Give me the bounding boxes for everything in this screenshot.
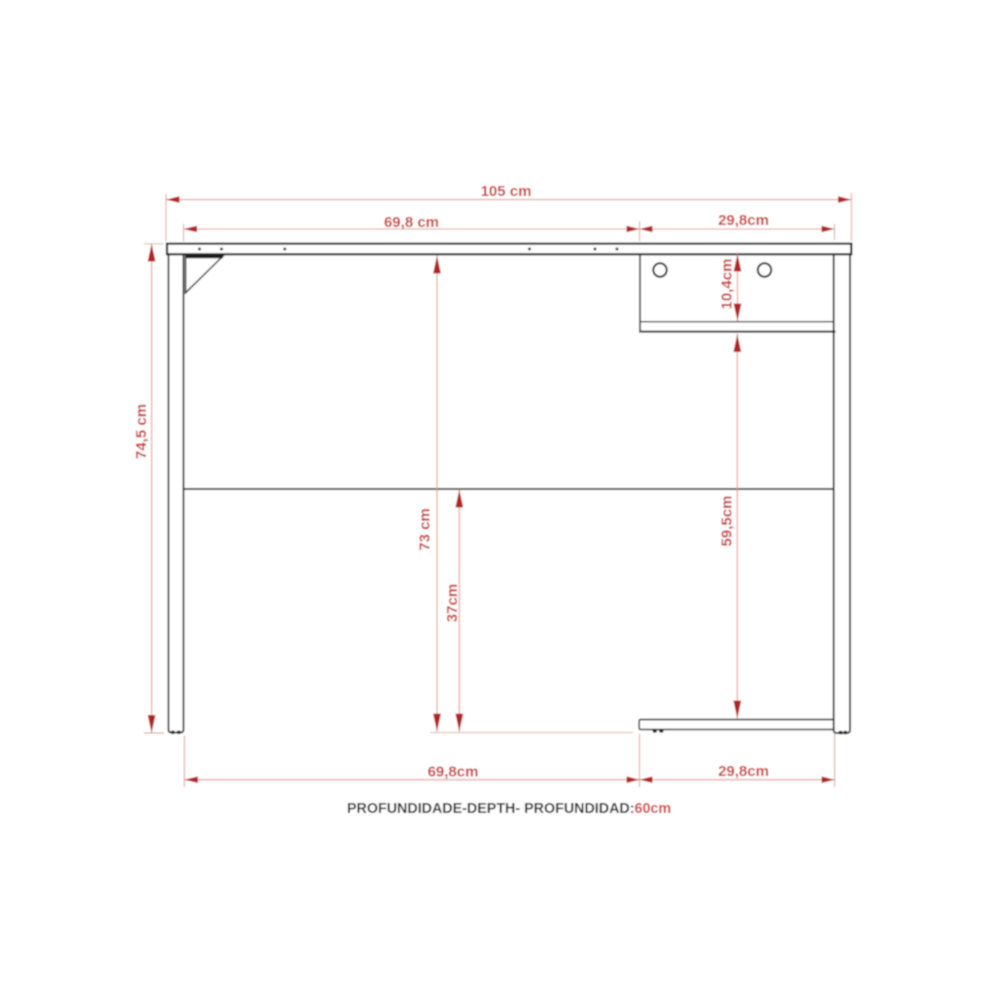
svg-text:29,8cm: 29,8cm bbox=[718, 212, 769, 229]
svg-text:105 cm: 105 cm bbox=[481, 183, 532, 200]
svg-text:69,8cm: 69,8cm bbox=[428, 764, 479, 781]
svg-text:69,8 cm: 69,8 cm bbox=[384, 214, 439, 231]
svg-text:74,5 cm: 74,5 cm bbox=[133, 404, 150, 459]
svg-text:37cm: 37cm bbox=[444, 584, 461, 622]
svg-text:73 cm: 73 cm bbox=[417, 508, 434, 551]
svg-text:PROFUNDIDADE-DEPTH- PROFUNDIDA: PROFUNDIDADE-DEPTH- PROFUNDIDAD:60cm bbox=[347, 801, 671, 817]
svg-text:59,5cm: 59,5cm bbox=[719, 496, 736, 547]
svg-text:10,4cm: 10,4cm bbox=[719, 259, 736, 310]
svg-text:29,8cm: 29,8cm bbox=[718, 763, 769, 780]
